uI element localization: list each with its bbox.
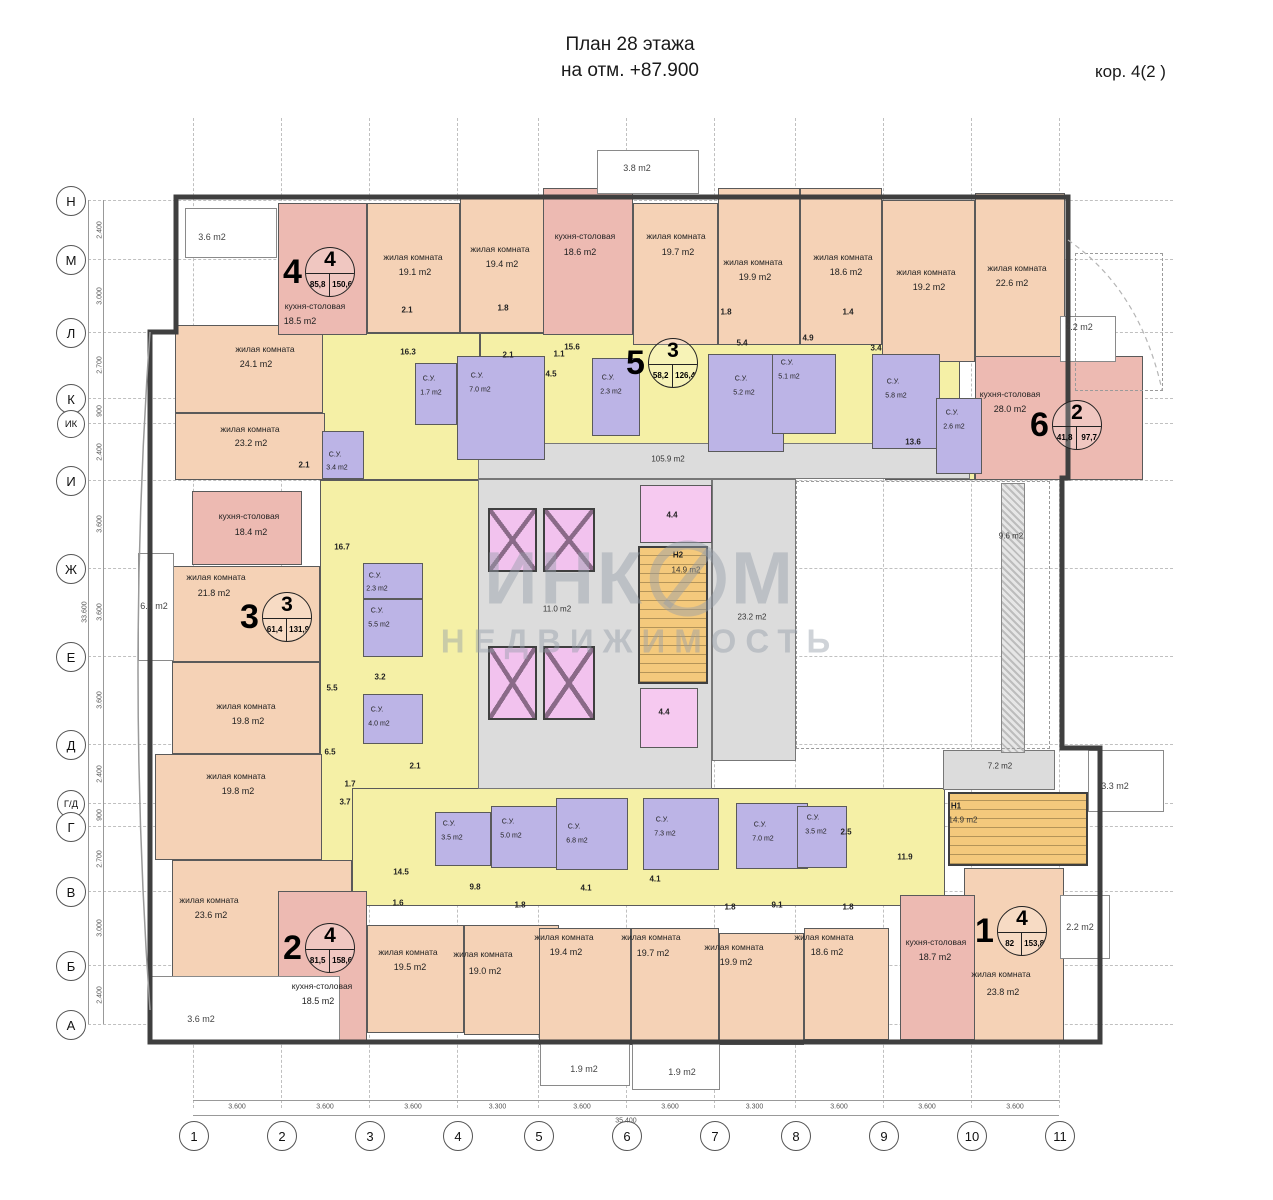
apartment-info-circle: 485,8150,6 (305, 247, 355, 297)
room-bath (363, 694, 423, 744)
apartment-living-area: 81,5 (306, 950, 331, 972)
axis-col-1: 1 (179, 1121, 209, 1151)
axis-row-А: А (56, 1010, 86, 1040)
row-dimension: 2.700 (97, 356, 104, 374)
row-dimension: 2.400 (97, 221, 104, 239)
corpus-label: кор. 4(2 ) (1095, 62, 1166, 82)
room-living (882, 200, 975, 362)
plan-title: План 28 этажа на отм. +87.900 (430, 32, 830, 83)
row-dimension: 3.600 (97, 691, 104, 709)
axis-col-8: 8 (781, 1121, 811, 1151)
apartment-info-circle: 482153,8 (997, 906, 1047, 956)
room-living (175, 325, 323, 413)
row-dimension: 900 (97, 809, 104, 821)
apartment-marker: 3361,4131,9 (240, 592, 312, 642)
apartment-areas: 81,5158,6 (306, 950, 354, 972)
axis-col-4: 4 (443, 1121, 473, 1151)
room-balcony (1060, 895, 1110, 959)
apartment-total-area: 97,7 (1077, 427, 1101, 449)
apartment-living-area: 61,4 (263, 619, 288, 641)
room-lift (488, 646, 537, 720)
axis-col-7: 7 (700, 1121, 730, 1151)
col-dimension: 3.600 (661, 1104, 679, 1111)
room-bath (457, 356, 545, 460)
apartment-total-area: 131,9 (287, 619, 311, 641)
apartment-living-area: 41,8 (1053, 427, 1078, 449)
axis-row-Ж: Ж (56, 554, 86, 584)
room-bath (797, 806, 847, 868)
apartment-total-area: 153,8 (1022, 933, 1046, 955)
apartment-living-area: 82 (998, 933, 1023, 955)
room-bath (643, 798, 719, 870)
axis-row-Е: Е (56, 642, 86, 672)
room-living (539, 928, 631, 1045)
apartment-flat-number: 2 (283, 931, 302, 965)
room-living (367, 925, 464, 1033)
room-living (804, 928, 889, 1040)
room-living (175, 413, 325, 480)
col-dimension: 3.300 (746, 1104, 764, 1111)
col-dimension: 3.600 (404, 1104, 422, 1111)
apartment-flat-number: 6 (1030, 408, 1049, 442)
row-dimension: 2.700 (97, 850, 104, 868)
col-dimension: 3.600 (228, 1104, 246, 1111)
axis-row-В: В (56, 877, 86, 907)
apartment-room-count: 3 (263, 593, 311, 619)
room-bath (772, 354, 836, 434)
room-stair (638, 546, 708, 684)
apartment-living-area: 85,8 (306, 274, 331, 296)
room-living (367, 203, 460, 333)
room-living (460, 196, 545, 333)
apartment-info-circle: 241,897,7 (1052, 400, 1102, 450)
room-bath (491, 806, 563, 868)
room-lift (543, 646, 595, 720)
room-living (719, 933, 804, 1045)
room-bath (415, 363, 457, 425)
apartment-room-count: 2 (1053, 401, 1101, 427)
room-lobby (640, 688, 698, 748)
apartment-flat-number: 5 (626, 346, 645, 380)
room-balcony (138, 553, 174, 661)
apartment-total-area: 158,6 (330, 950, 354, 972)
room-balcony (185, 208, 277, 258)
room-bath (872, 354, 940, 449)
apartment-info-circle: 361,4131,9 (262, 592, 312, 642)
axis-col-2: 2 (267, 1121, 297, 1151)
row-dimension: 3.000 (97, 287, 104, 305)
room-bath (435, 812, 491, 866)
apartment-marker: 4485,8150,6 (283, 247, 355, 297)
apartment-room-count: 4 (306, 248, 354, 274)
axis-col-10: 10 (957, 1121, 987, 1151)
axis-row-И: И (56, 466, 86, 496)
room-balcony (632, 1042, 720, 1090)
room-lift (543, 508, 595, 572)
room-living (975, 193, 1065, 363)
room-lift (488, 508, 537, 572)
room-common (943, 750, 1055, 790)
row-dimension: 2.400 (97, 986, 104, 1004)
room-balcony (597, 150, 699, 194)
axis-col-9: 9 (869, 1121, 899, 1151)
row-dimension: 2.400 (97, 443, 104, 461)
total-width-dimension: 35.400 (615, 1118, 636, 1125)
col-dimension: 3.600 (918, 1104, 936, 1111)
row-dimension: 900 (97, 405, 104, 417)
apartment-info-circle: 358,2126,4 (648, 338, 698, 388)
apartment-total-area: 150,6 (330, 274, 354, 296)
col-dimension: 3.600 (830, 1104, 848, 1111)
room-bath (936, 398, 982, 474)
axis-row-Б: Б (56, 951, 86, 981)
room-living (633, 203, 718, 345)
col-dimension: 3.600 (573, 1104, 591, 1111)
row-dimension: 3.600 (97, 515, 104, 533)
room-lobby (640, 485, 712, 543)
row-dimension: 3.600 (97, 603, 104, 621)
room-living (800, 188, 882, 345)
room-balcony (540, 1042, 630, 1086)
room-living (155, 754, 322, 860)
total-height-dimension: 33.600 (82, 601, 89, 622)
col-dimension: 3.600 (1006, 1104, 1024, 1111)
apartment-areas: 82153,8 (998, 933, 1046, 955)
room-bath (556, 798, 628, 870)
axis-row-М: М (56, 245, 86, 275)
room-kitchen (900, 895, 975, 1040)
apartment-areas: 58,2126,4 (649, 365, 697, 387)
apartment-flat-number: 4 (283, 255, 302, 289)
apartment-areas: 85,8150,6 (306, 274, 354, 296)
room-living (631, 928, 719, 1045)
axis-col-3: 3 (355, 1121, 385, 1151)
axis-col-11: 11 (1045, 1121, 1075, 1151)
room-kitchen (543, 188, 633, 335)
room-stair (948, 792, 1088, 866)
room-balcony (1088, 750, 1164, 812)
bottom-dim-line (193, 1100, 1059, 1101)
apartment-marker: 2481,5158,6 (283, 923, 355, 973)
room-kitchen (192, 491, 302, 565)
apartment-marker: 5358,2126,4 (626, 338, 698, 388)
apartment-marker: 1482153,8 (975, 906, 1047, 956)
row-dimension: 3.000 (97, 919, 104, 937)
row-dimension: 2.400 (97, 765, 104, 783)
apartment-room-count: 3 (649, 339, 697, 365)
room-bath (363, 599, 423, 657)
apartment-flat-number: 3 (240, 600, 259, 634)
axis-row-Д: Д (56, 730, 86, 760)
axis-row-ИК: ИК (57, 410, 85, 438)
plan-title-line2: на отм. +87.900 (430, 58, 830, 84)
axis-row-Н: Н (56, 186, 86, 216)
bottom-total-line (193, 1115, 1059, 1116)
room-common (712, 479, 796, 761)
apartment-marker: 6241,897,7 (1030, 400, 1102, 450)
apartment-flat-number: 1 (975, 914, 994, 948)
col-dimension: 3.300 (489, 1104, 507, 1111)
apartment-room-count: 4 (306, 924, 354, 950)
room-bath (322, 431, 364, 479)
axis-row-Л: Л (56, 318, 86, 348)
axis-col-6: 6 (612, 1121, 642, 1151)
room-living (718, 188, 800, 345)
apartment-info-circle: 481,5158,6 (305, 923, 355, 973)
axis-col-5: 5 (524, 1121, 554, 1151)
apartment-room-count: 4 (998, 907, 1046, 933)
room-balcony (148, 976, 340, 1044)
floor-plan-canvas: План 28 этажа на отм. +87.900 кор. 4(2 )… (0, 0, 1273, 1200)
apartment-living-area: 58,2 (649, 365, 674, 387)
room-bath (363, 563, 423, 599)
col-dimension: 3.600 (316, 1104, 334, 1111)
axis-row-Г: Г (56, 812, 86, 842)
apartment-areas: 41,897,7 (1053, 427, 1101, 449)
room-void (796, 481, 1050, 749)
room-void (1075, 253, 1163, 391)
apartment-total-area: 126,4 (673, 365, 697, 387)
room-living (172, 662, 320, 754)
plan-title-line1: План 28 этажа (430, 32, 830, 58)
apartment-areas: 61,4131,9 (263, 619, 311, 641)
